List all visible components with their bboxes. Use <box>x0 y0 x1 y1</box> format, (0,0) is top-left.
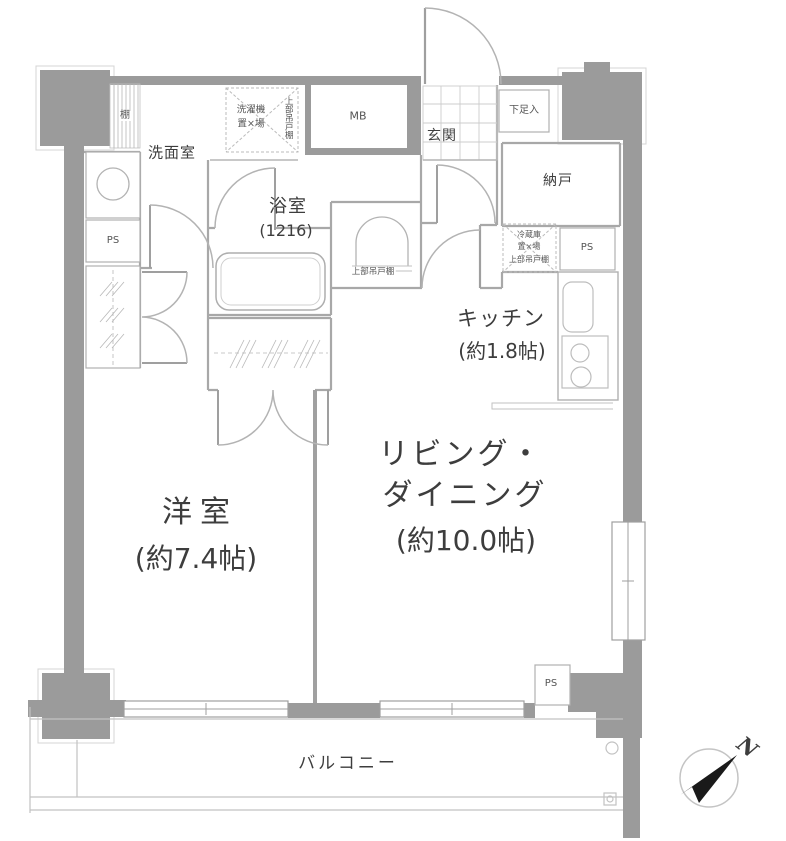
western-room-size-label: (約7.4帖) <box>135 545 257 573</box>
kitchen-size-label: (約1.8帖) <box>458 341 545 361</box>
living-dining-label-line2: ダイニング <box>383 481 548 511</box>
storage-room-label: 納戸 <box>543 174 573 188</box>
toilet <box>356 217 408 266</box>
pipe-shaft-right-label: PS <box>581 243 593 253</box>
kitchen-label: キッチン <box>457 309 545 330</box>
kitchen-sink <box>563 282 593 332</box>
kitchen-step <box>492 403 613 409</box>
washer-upper-cabinet-label: 上部吊戸棚 <box>284 97 293 140</box>
window-side <box>612 522 645 640</box>
living-dining-size-label: (約10.0帖) <box>396 527 536 555</box>
western-room-label: 洋室 <box>154 498 238 528</box>
living-door <box>422 230 480 288</box>
fridge-label-line1: 冷蔵庫 <box>517 231 541 239</box>
washroom-door <box>150 205 213 268</box>
living-dining-label-line1: リビング・ <box>379 440 544 470</box>
bathroom-label: 浴室 <box>269 198 307 216</box>
pipe-shaft-left-label: PS <box>107 236 119 246</box>
fridge-label-line2: 置×場 <box>518 243 541 251</box>
hall-door <box>437 165 495 223</box>
washer-label-line2: 置×場 <box>238 119 265 129</box>
kitchen-stove <box>562 336 608 388</box>
doors <box>142 8 501 445</box>
pipe-shaft-bottom-label: PS <box>545 679 557 689</box>
balcony-label: バルコニー <box>298 756 398 773</box>
shelf-label: 棚 <box>119 111 131 121</box>
bathtub <box>216 253 325 310</box>
entrance-label: 玄関 <box>427 129 457 143</box>
cabinet-boxes <box>86 90 615 705</box>
closet-left-box <box>86 266 140 368</box>
washroom-label: 洗面室 <box>148 146 196 161</box>
compass <box>680 749 738 807</box>
toilet-upper-cabinet-label: 上部吊戸棚 <box>351 268 396 277</box>
entrance-tiles <box>423 86 497 160</box>
window-bedroom <box>124 701 288 717</box>
meter-box-label: MB <box>349 111 366 122</box>
vanity-counter <box>86 152 140 218</box>
bathroom-size-label: (1216) <box>259 223 312 239</box>
fridge-label-line3: 上部吊戸棚 <box>509 256 549 264</box>
washer-label-line1: 洗濯機 <box>237 105 266 115</box>
balcony-drain <box>606 742 618 754</box>
shoe-cabinet-label: 下足入 <box>509 106 539 116</box>
closet-double-doors <box>218 390 328 445</box>
window-living <box>380 701 524 717</box>
entrance-door <box>425 8 501 84</box>
floor-plan: 棚 洗濯機 置×場 上部吊戸棚 洗面室 MB 玄関 下足入 納戸 冷蔵庫 置×場… <box>0 0 786 841</box>
left-closet-double-doors <box>142 272 187 363</box>
floor-plan-drawing <box>0 0 786 841</box>
